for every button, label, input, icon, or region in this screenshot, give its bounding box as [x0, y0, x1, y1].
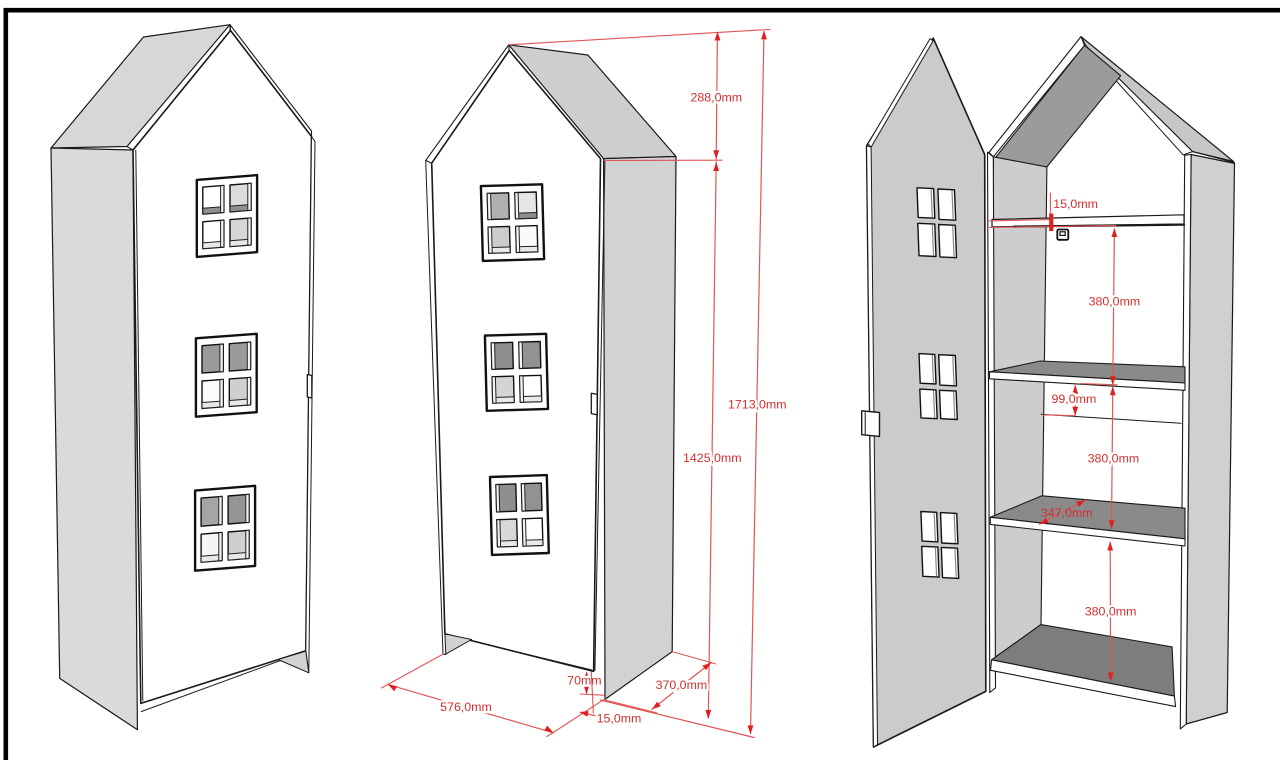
svg-text:347,0mm: 347,0mm — [1041, 506, 1093, 520]
svg-text:15,0mm: 15,0mm — [597, 711, 642, 725]
svg-text:1425,0mm: 1425,0mm — [683, 451, 742, 465]
svg-text:1713,0mm: 1713,0mm — [728, 398, 787, 412]
svg-text:15,0mm: 15,0mm — [1053, 197, 1098, 211]
svg-text:70mm: 70mm — [567, 673, 601, 687]
svg-text:380,0mm: 380,0mm — [1085, 605, 1137, 619]
svg-text:370,0mm: 370,0mm — [656, 678, 708, 692]
svg-text:380,0mm: 380,0mm — [1089, 295, 1141, 309]
svg-text:380,0mm: 380,0mm — [1088, 451, 1140, 465]
svg-text:99,0mm: 99,0mm — [1052, 392, 1097, 406]
svg-text:288,0mm: 288,0mm — [690, 90, 742, 104]
svg-text:576,0mm: 576,0mm — [440, 700, 492, 714]
